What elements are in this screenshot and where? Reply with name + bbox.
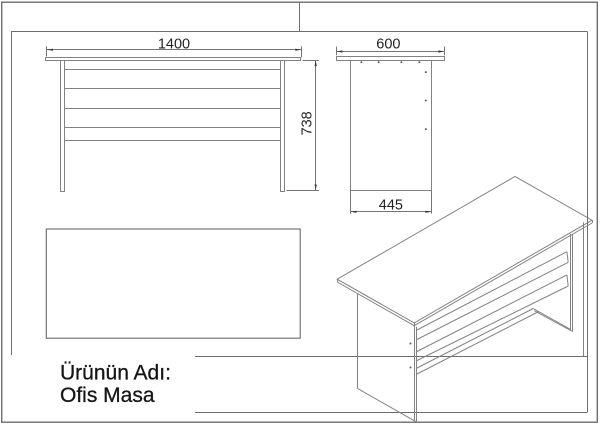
svg-text:Ofis Masa: Ofis Masa — [60, 384, 155, 407]
svg-text:738: 738 — [299, 111, 315, 135]
svg-text:1400: 1400 — [158, 37, 190, 53]
svg-text:Ürünün Adı:: Ürünün Adı: — [60, 362, 171, 385]
svg-text:600: 600 — [376, 37, 400, 53]
svg-text:445: 445 — [379, 198, 403, 214]
